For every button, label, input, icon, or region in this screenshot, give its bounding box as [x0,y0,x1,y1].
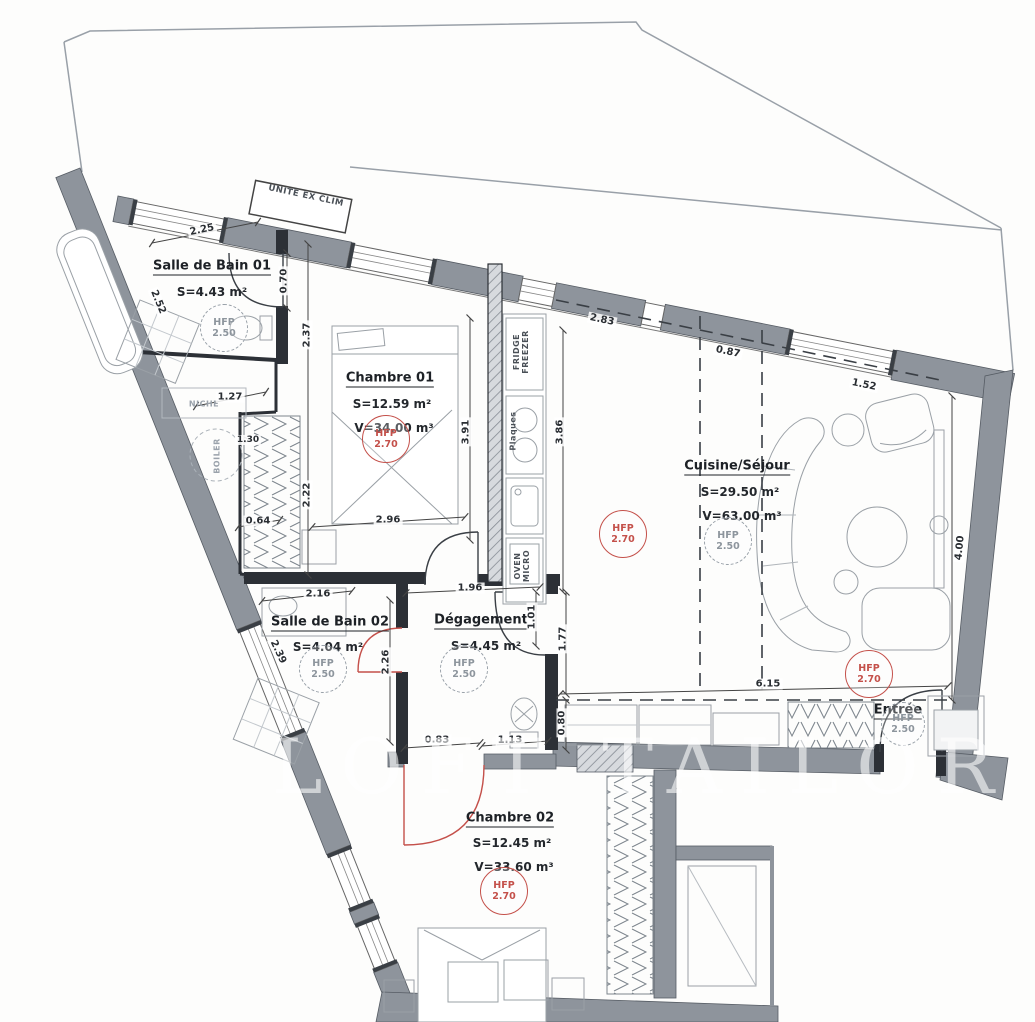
hfp-label: HFP [493,880,514,891]
hfp-value: 2.50 [212,328,235,339]
hfp-badge-chambre1: HFP 2.70 [362,415,410,463]
hfp-label: HFP [717,530,738,541]
micro-label: MICRO [522,550,531,582]
room-name-chambre2: Chambre 02 [466,811,554,828]
dim-3-91: 3.91 [461,418,472,447]
dim-1-52: 1.52 [849,377,879,394]
dim-0-87: 0.87 [713,344,743,361]
niche-label: NICHE [189,400,219,409]
hfp-label: HFP [375,428,396,439]
room-area-chambre2: S=12.45 m² [473,836,552,850]
room-area-sdb1: S=4.43 m² [177,285,247,299]
hfp-label: HFP [612,523,633,534]
dim-2-22: 2.22 [302,481,313,510]
hfp-value: 2.50 [716,541,739,552]
floor-plan: Salle de Bain 01 S=4.43 m² HFP 2.50 Cham… [0,0,1035,1022]
dim-0-70: 0.70 [279,267,290,296]
hfp-label: HFP [453,658,474,669]
dim-1-30: 1.30 [235,435,261,445]
dim-1-01: 1.01 [527,603,538,632]
fridge-freezer-label: FRIDGE FREEZER [512,330,530,373]
room-name-cuisine: Cuisine/Séjour [684,459,790,476]
dim-0-80: 0.80 [557,709,568,738]
dim-3-86: 3.86 [555,418,566,447]
dim-1-13: 1.13 [496,735,525,746]
hfp-label: HFP [892,713,913,724]
freezer-label: FREEZER [521,330,530,373]
hfp-label: HFP [213,317,234,328]
hfp-badge-cuisine: HFP 2.50 [704,517,752,565]
hfp-value: 2.50 [452,669,475,680]
dim-1-96: 1.96 [456,583,485,594]
dim-0-83: 0.83 [423,735,452,746]
hfp-label: HFP [858,663,879,674]
unite-ex-clim-label: UNITE EX CLIM [267,183,344,209]
dim-0-64: 0.64 [244,516,273,527]
dim-6-15: 6.15 [754,679,783,690]
oven-micro-label: OVEN MICRO [513,550,531,582]
dim-2-83: 2.83 [587,312,617,329]
hfp-value: 2.70 [492,891,515,902]
hfp-label: HFP [312,658,333,669]
labels-layer: Salle de Bain 01 S=4.43 m² HFP 2.50 Cham… [0,0,1035,1022]
plaques-label: Plaques [509,411,518,450]
hfp-value: 2.70 [611,534,634,545]
hfp-value: 2.70 [374,439,397,450]
room-name-sdb1: Salle de Bain 01 [153,259,271,276]
dim-2-16: 2.16 [304,589,333,600]
fridge-label: FRIDGE [512,330,521,373]
hfp-badge-entree: HFP 2.50 [881,702,925,746]
dim-2-37: 2.37 [302,321,313,350]
dim-4-00: 4.00 [953,533,967,563]
dim-2-26: 2.26 [381,648,392,677]
hfp-badge-sejour-right: HFP 2.70 [845,650,893,698]
oven-label: OVEN [513,550,522,582]
hfp-badge-sdb1: HFP 2.50 [200,304,248,352]
boiler-label: BOILER [213,438,222,474]
hfp-value: 2.50 [311,669,334,680]
dim-1-27: 1.27 [216,392,245,403]
hfp-badge-sejour-mid: HFP 2.70 [599,510,647,558]
hfp-badge-degagement: HFP 2.50 [440,645,488,693]
room-area-chambre1: S=12.59 m² [353,397,432,411]
dim-2-96: 2.96 [374,515,403,526]
dim-2-52: 2.52 [148,287,169,318]
room-area-cuisine: S=29.50 m² [701,485,780,499]
hfp-badge-chambre2: HFP 2.70 [480,867,528,915]
dim-2-39: 2.39 [267,637,289,668]
room-name-degagement: Dégagement [434,613,528,630]
hfp-value: 2.50 [891,724,914,735]
room-name-sdb2: Salle de Bain 02 [271,615,389,632]
dim-1-77: 1.77 [558,625,569,654]
dim-2-25: 2.25 [187,222,217,239]
hfp-badge-sdb2: HFP 2.50 [299,645,347,693]
hfp-value: 2.70 [857,674,880,685]
room-name-chambre1: Chambre 01 [346,371,434,388]
